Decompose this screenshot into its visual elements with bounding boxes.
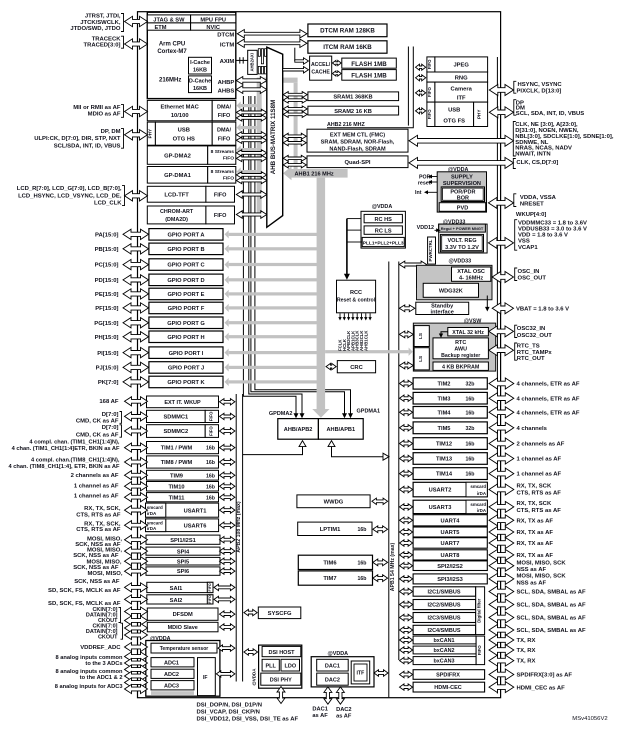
svg-text:PD[15:0]: PD[15:0]	[95, 278, 119, 284]
svg-text:SDMMC1: SDMMC1	[163, 415, 188, 421]
svg-text:GPIO PORT C: GPIO PORT C	[167, 263, 204, 269]
svg-text:ADC3: ADC3	[164, 684, 179, 690]
svg-text:Temperature sensor: Temperature sensor	[160, 646, 209, 652]
svg-text:PC[15:0]: PC[15:0]	[95, 263, 119, 269]
svg-text:FIFO: FIFO	[427, 59, 432, 69]
svg-text:EXT IT. WKUP: EXT IT. WKUP	[164, 400, 201, 406]
svg-text:LCD_CLK: LCD_CLK	[94, 201, 122, 207]
svg-text:1 channel as AF: 1 channel as AF	[517, 457, 562, 463]
svg-text:PG[15:0]: PG[15:0]	[94, 321, 118, 327]
svg-text:16b: 16b	[206, 473, 215, 479]
svg-text:TIM3: TIM3	[438, 396, 451, 402]
svg-text:DFSDM: DFSDM	[173, 612, 193, 618]
svg-text:FIFO: FIFO	[427, 109, 432, 119]
svg-text:VOLT. REG: VOLT. REG	[447, 238, 476, 244]
svg-text:LS: LS	[418, 332, 424, 339]
svg-text:TIM2: TIM2	[438, 382, 451, 388]
svg-text:LDO: LDO	[284, 663, 296, 669]
svg-text:SCL, SDA, INT, ID, VBUS: SCL, SDA, INT, ID, VBUS	[516, 111, 584, 117]
svg-text:CLK, CS,D[7:0]: CLK, CS,D[7:0]	[516, 160, 558, 166]
svg-text:GPIO PORT E: GPIO PORT E	[168, 292, 205, 298]
svg-text:SDMMC2: SDMMC2	[163, 429, 188, 435]
svg-text:WDG32K: WDG32K	[439, 288, 463, 294]
svg-text:VDDUSB33 = 3.0 to 3.6 V: VDDUSB33 = 3.0 to 3.6 V	[518, 227, 587, 233]
svg-text:TX, RX: TX, RX	[517, 648, 536, 654]
svg-text:SCK, NSS as AF: SCK, NSS as AF	[74, 579, 120, 585]
svg-text:I2C4/SMBUS: I2C4/SMBUS	[427, 628, 460, 634]
svg-text:Camera: Camera	[451, 86, 473, 92]
svg-text:NRESET: NRESET	[520, 201, 544, 207]
svg-text:GPDMA2: GPDMA2	[269, 411, 293, 417]
svg-text:SCL, SDA, SMBAL as AF: SCL, SDA, SMBAL as AF	[517, 603, 586, 609]
svg-text:CTS, RTS as AF: CTS, RTS as AF	[76, 512, 121, 518]
svg-text:GP-DMA2: GP-DMA2	[164, 153, 191, 159]
svg-text:I2C2/SMBUS: I2C2/SMBUS	[427, 603, 460, 609]
svg-text:SD, SCK, FS, MCLK as AF: SD, SCK, FS, MCLK as AF	[48, 601, 121, 607]
svg-text:1 channel as AF: 1 channel as AF	[74, 493, 119, 499]
svg-text:AHB1 216 MHz: AHB1 216 MHz	[295, 172, 334, 178]
svg-text:DTCM: DTCM	[217, 32, 234, 38]
svg-text:JTRST, JTDI,: JTRST, JTDI,	[85, 14, 121, 20]
svg-text:DSI_VCAP, DSI_CKP/N: DSI_VCAP, DSI_CKP/N	[197, 709, 260, 715]
svg-text:TIM12: TIM12	[436, 442, 452, 448]
svg-text:TIM13: TIM13	[436, 457, 452, 463]
svg-text:FIFO: FIFO	[477, 645, 482, 656]
svg-text:3.3V TO 1.2V: 3.3V TO 1.2V	[445, 245, 479, 251]
svg-text:16KB: 16KB	[193, 86, 207, 92]
svg-text:TIM9: TIM9	[170, 473, 183, 479]
svg-text:SCL, SDA, SMBAL as AF: SCL, SDA, SMBAL as AF	[517, 590, 586, 596]
svg-text:TIM10: TIM10	[168, 484, 184, 490]
svg-text:TIM4: TIM4	[438, 410, 452, 416]
svg-text:Regul + POWER MNGT: Regul + POWER MNGT	[441, 226, 484, 231]
svg-text:OSC32_IN: OSC32_IN	[517, 326, 545, 332]
svg-text:FLASH 1MB: FLASH 1MB	[351, 72, 387, 79]
svg-text:JTCK/SWCLK,: JTCK/SWCLK,	[80, 20, 121, 26]
svg-text:Ethernet MAC: Ethernet MAC	[161, 105, 200, 111]
svg-text:32b: 32b	[466, 382, 475, 388]
svg-text:LCD_R[7:0], LCD_G[7:0], LCD_B[: LCD_R[7:0], LCD_G[7:0], LCD_B[7:0],	[17, 186, 122, 192]
svg-text:16b: 16b	[466, 410, 475, 416]
svg-text:smcard: smcard	[470, 484, 486, 489]
svg-text:EXT MEM CTL (FMC): EXT MEM CTL (FMC)	[330, 133, 385, 139]
svg-text:SCL, SDA, SMBAL as AF: SCL, SDA, SMBAL as AF	[517, 616, 586, 622]
svg-text:AHB/APB2: AHB/APB2	[284, 427, 313, 433]
svg-text:CTS, RTS as AF: CTS, RTS as AF	[517, 508, 562, 514]
svg-text:SPDIFRX[3:0] as AF: SPDIFRX[3:0] as AF	[517, 673, 573, 679]
svg-text:RX, TX as AF: RX, TX as AF	[517, 541, 554, 547]
svg-text:FIFO: FIFO	[214, 193, 227, 199]
svg-text:SPI6: SPI6	[177, 569, 189, 575]
svg-text:ITF: ITF	[357, 671, 365, 677]
svg-text:GPIO PORT B: GPIO PORT B	[167, 247, 204, 253]
svg-text:I2C1/SMBUS: I2C1/SMBUS	[427, 590, 460, 596]
svg-text:FIFO: FIFO	[214, 213, 227, 219]
svg-text:SAI1: SAI1	[170, 586, 183, 592]
svg-text:VBAT = 1.8 to 3.6 V: VBAT = 1.8 to 3.6 V	[516, 307, 569, 313]
svg-text:SRAM, SDRAM, NOR-Flash,: SRAM, SDRAM, NOR-Flash,	[321, 140, 395, 146]
svg-text:POR: POR	[419, 174, 431, 180]
svg-text:FIFO: FIFO	[208, 583, 212, 591]
svg-text:IF: IF	[203, 675, 208, 681]
svg-text:I2C3/SMBUS: I2C3/SMBUS	[427, 616, 460, 622]
svg-text:4 compl. chan. (TIM1_CH1[1:4]N: 4 compl. chan. (TIM1_CH1[1:4]N),	[29, 439, 119, 445]
svg-text:DAC1: DAC1	[325, 663, 340, 669]
svg-text:HDMI_CEC as AF: HDMI_CEC as AF	[517, 685, 566, 691]
svg-text:I-Cache: I-Cache	[190, 60, 210, 66]
svg-text:GPIO PORT H: GPIO PORT H	[167, 335, 204, 341]
svg-text:VDDA, VSSA: VDDA, VSSA	[520, 195, 557, 201]
svg-text:FLASH 1MB: FLASH 1MB	[351, 61, 387, 68]
svg-text:DMA/: DMA/	[217, 127, 232, 133]
svg-text:CHROM-ART: CHROM-ART	[160, 209, 194, 215]
svg-text:ETM: ETM	[154, 25, 166, 31]
svg-text:TIM1 / PWM: TIM1 / PWM	[161, 446, 193, 452]
svg-text:4 KB BKPRAM: 4 KB BKPRAM	[442, 364, 480, 370]
svg-text:FIFO: FIFO	[218, 113, 231, 119]
svg-text:Digital filter: Digital filter	[477, 598, 482, 622]
svg-text:Cortex-M7: Cortex-M7	[157, 49, 187, 55]
svg-text:CKOUT: CKOUT	[98, 634, 118, 640]
svg-text:CTS, RTS as AF: CTS, RTS as AF	[517, 490, 562, 496]
svg-text:RX, TX as AF: RX, TX as AF	[517, 518, 554, 524]
svg-text:Backup register: Backup register	[441, 353, 480, 359]
svg-text:RC HS: RC HS	[374, 217, 392, 223]
svg-text:DAC2: DAC2	[325, 677, 340, 683]
svg-text:16b: 16b	[466, 396, 475, 402]
svg-text:AHB/APB1: AHB/APB1	[326, 427, 355, 433]
svg-text:POR/PDR: POR/PDR	[450, 189, 475, 195]
svg-text:ITCM RAM 16KB: ITCM RAM 16KB	[323, 44, 372, 51]
svg-text:8 Streams: 8 Streams	[211, 169, 235, 175]
svg-text:SCL, SDA, SMBAL as AF: SCL, SDA, SMBAL as AF	[517, 628, 586, 634]
svg-text:TX, RX: TX, RX	[517, 638, 536, 644]
svg-text:TIM8 / PWM: TIM8 / PWM	[161, 460, 193, 466]
svg-text:PB[15:0]: PB[15:0]	[95, 247, 119, 253]
svg-text:FIFO: FIFO	[218, 136, 231, 142]
svg-text:MII or RMII as AF: MII or RMII as AF	[73, 105, 121, 111]
svg-text:OSC_OUT: OSC_OUT	[518, 276, 547, 282]
svg-text:FIFO: FIFO	[223, 155, 234, 161]
svg-text:to the 3 ADCs: to the 3 ADCs	[85, 661, 122, 667]
svg-text:GPIO PORT J: GPIO PORT J	[168, 366, 204, 372]
svg-text:CMD, CK as AF: CMD, CK as AF	[76, 419, 119, 425]
svg-text:16b: 16b	[358, 561, 367, 567]
svg-text:SPI5: SPI5	[177, 559, 189, 565]
svg-text:USART3: USART3	[429, 505, 452, 511]
svg-text:D[7:0]: D[7:0]	[102, 412, 119, 418]
svg-text:GPIO PORT A: GPIO PORT A	[167, 233, 204, 239]
svg-text:PIXCLK, D[13:0]: PIXCLK, D[13:0]	[517, 89, 562, 95]
svg-text:AWU: AWU	[454, 346, 467, 352]
svg-text:CTS, RTS as AF: CTS, RTS as AF	[76, 527, 121, 533]
svg-text:APB2 108 MHz (max): APB2 108 MHz (max)	[236, 501, 242, 553]
svg-text:@VDDA: @VDDA	[252, 668, 257, 686]
svg-text:WWDG: WWDG	[324, 499, 344, 505]
svg-text:8 analog inputs for ADC3: 8 analog inputs for ADC3	[55, 684, 123, 690]
svg-text:ICTM: ICTM	[220, 42, 234, 48]
svg-text:USART1: USART1	[184, 508, 207, 514]
svg-text:SPI2/I2S2: SPI2/I2S2	[437, 564, 463, 570]
svg-text:smcard: smcard	[147, 520, 163, 525]
svg-text:JPEG: JPEG	[453, 63, 469, 69]
svg-text:RC LS: RC LS	[375, 228, 392, 234]
svg-text:16b: 16b	[206, 495, 215, 501]
svg-text:SUPPLY: SUPPLY	[451, 175, 473, 181]
svg-text:PI[15:0]: PI[15:0]	[97, 351, 118, 357]
svg-text:UART5: UART5	[441, 530, 460, 536]
svg-text:RX, TX, SCK: RX, TX, SCK	[517, 501, 552, 507]
svg-text:JTDO/SWD, JTDO: JTDO/SWD, JTDO	[70, 26, 120, 32]
svg-text:16b: 16b	[466, 472, 475, 478]
svg-text:irDA: irDA	[477, 491, 487, 496]
svg-text:SRAM2 16 KB: SRAM2 16 KB	[334, 109, 372, 115]
svg-text:PLL1+PLL2+PLL3: PLL1+PLL2+PLL3	[363, 240, 404, 246]
svg-text:GP-DMA1: GP-DMA1	[164, 173, 192, 179]
svg-text:DTCM RAM 128KB: DTCM RAM 128KB	[320, 28, 375, 35]
svg-text:VDDMMC33 = 1.8 to 3.6V: VDDMMC33 = 1.8 to 3.6V	[518, 221, 587, 227]
svg-text:bxCAN2: bxCAN2	[434, 648, 455, 654]
svg-text:HDMI-CEC: HDMI-CEC	[434, 685, 462, 691]
svg-text:16KB: 16KB	[193, 68, 207, 74]
svg-text:RX, TX as AF: RX, TX as AF	[517, 553, 554, 559]
svg-text:SPDIFRX: SPDIFRX	[436, 673, 460, 679]
svg-text:AHB2AXI: AHB2AXI	[249, 53, 254, 71]
svg-text:RNG: RNG	[455, 75, 468, 81]
svg-text:LCD-TFT: LCD-TFT	[164, 193, 189, 199]
svg-text:DSI PHY: DSI PHY	[270, 677, 292, 683]
svg-text:16b: 16b	[206, 484, 215, 490]
svg-text:BOR: BOR	[457, 196, 469, 202]
svg-text:AHB BUS-MATRIX 11S8M: AHB BUS-MATRIX 11S8M	[270, 100, 277, 175]
svg-text:VDD12: VDD12	[417, 225, 434, 231]
svg-text:TX, RX: TX, RX	[517, 659, 536, 665]
svg-text:SAI2: SAI2	[170, 598, 183, 604]
svg-text:TIM11: TIM11	[169, 495, 185, 501]
svg-text:DSI_DOP/N, DSI_D1P/N: DSI_DOP/N, DSI_D1P/N	[197, 702, 262, 708]
svg-text:APB1 54 MHz (max): APB1 54 MHz (max)	[390, 543, 396, 592]
svg-text:RTC_TS: RTC_TS	[517, 344, 540, 350]
svg-text:216MHz: 216MHz	[159, 78, 181, 84]
svg-text:VDDREF_ADC: VDDREF_ADC	[80, 645, 121, 651]
svg-text:UART4: UART4	[441, 518, 461, 524]
svg-text:AHBP: AHBP	[218, 80, 235, 86]
svg-text:16b: 16b	[206, 460, 215, 466]
svg-text:ACCEL/: ACCEL/	[311, 62, 331, 68]
svg-text:AHB1CLK: AHB1CLK	[363, 330, 368, 351]
svg-text:to the ADC1 & 2: to the ADC1 & 2	[80, 675, 123, 681]
svg-text:16b: 16b	[466, 442, 475, 448]
svg-text:CRC: CRC	[350, 365, 363, 371]
svg-text:ITF: ITF	[457, 95, 466, 101]
svg-text:PK[7:0]: PK[7:0]	[98, 380, 119, 386]
svg-text:PHY: PHY	[148, 129, 153, 138]
svg-text:CMD, CK as AF: CMD, CK as AF	[76, 432, 119, 438]
svg-text:DSI_VDD12, DSI_VSS, DSI_TE as: DSI_VDD12, DSI_VSS, DSI_TE as AF	[197, 717, 299, 723]
svg-text:Int: Int	[415, 190, 422, 196]
svg-text:FIFO: FIFO	[209, 411, 214, 421]
svg-text:NVIC: NVIC	[206, 25, 220, 31]
svg-text:10/100: 10/100	[171, 113, 189, 119]
svg-text:(DMA2D): (DMA2D)	[165, 217, 188, 223]
svg-text:MDIO as AF: MDIO as AF	[88, 111, 121, 117]
svg-text:RX, TX, SCK,: RX, TX, SCK,	[84, 506, 121, 512]
svg-text:NWAIT, INTN: NWAIT, INTN	[515, 152, 550, 158]
svg-text:PE[15:0]: PE[15:0]	[95, 292, 119, 298]
svg-text:TRACED[3:0]: TRACED[3:0]	[84, 43, 121, 49]
svg-text:NAND-Flash, SDRAM: NAND-Flash, SDRAM	[329, 146, 386, 152]
svg-text:16b: 16b	[206, 446, 215, 452]
svg-text:irDA: irDA	[147, 511, 157, 516]
svg-text:UART7: UART7	[441, 541, 460, 547]
svg-text:32b: 32b	[466, 426, 475, 432]
svg-text:bxCAN1: bxCAN1	[434, 638, 455, 644]
svg-text:RX, TX as AF: RX, TX as AF	[517, 530, 554, 536]
svg-text:SCL/SDA, INT, ID, VBUS: SCL/SDA, INT, ID, VBUS	[54, 143, 121, 149]
svg-text:USART2: USART2	[429, 488, 452, 494]
svg-text:PF[15:0]: PF[15:0]	[95, 306, 118, 312]
svg-text:TIM5: TIM5	[438, 426, 451, 432]
svg-text:bxCAN3: bxCAN3	[434, 659, 455, 665]
svg-text:FIFO: FIFO	[208, 595, 212, 603]
svg-text:ADC1: ADC1	[164, 661, 179, 667]
svg-text:NSS as AF: NSS as AF	[517, 567, 547, 573]
svg-text:interface: interface	[431, 310, 454, 316]
svg-text:HSYNC, VSYNC: HSYNC, VSYNC	[518, 82, 563, 88]
svg-text:PWRCTRL: PWRCTRL	[428, 239, 433, 261]
svg-text:4- 16MHz: 4- 16MHz	[459, 276, 483, 282]
svg-text:SRAM1 368KB: SRAM1 368KB	[333, 95, 372, 101]
svg-text:UART8: UART8	[441, 553, 460, 559]
svg-text:RCC: RCC	[350, 290, 362, 296]
svg-text:RX, TX, SCK: RX, TX, SCK	[517, 484, 552, 490]
svg-text:TIM14: TIM14	[436, 472, 453, 478]
svg-text:@VDD33: @VDD33	[449, 258, 472, 264]
svg-text:RTC_OUT: RTC_OUT	[517, 356, 545, 362]
svg-text:Reset & control: Reset & control	[337, 297, 376, 303]
svg-text:Arm CPU: Arm CPU	[159, 42, 185, 48]
svg-text:SPI3/I2S3: SPI3/I2S3	[437, 577, 463, 583]
svg-text:MSv41056V2: MSv41056V2	[572, 716, 607, 722]
svg-text:OSC32_OUT: OSC32_OUT	[517, 333, 552, 339]
svg-text:irDA: irDA	[147, 526, 157, 531]
svg-text:SPI1/I2S1: SPI1/I2S1	[170, 538, 196, 544]
svg-text:D[7:0]: D[7:0]	[102, 425, 119, 431]
svg-text:as AF: as AF	[312, 713, 328, 719]
svg-text:16b: 16b	[466, 457, 475, 463]
svg-text:Standby: Standby	[431, 304, 454, 310]
svg-text:GPIO PORT G: GPIO PORT G	[167, 321, 205, 327]
svg-text:4 channels, ETR as AF: 4 channels, ETR as AF	[517, 396, 580, 402]
svg-text:2 channels as AF: 2 channels as AF	[517, 442, 565, 448]
svg-text:CACHE: CACHE	[311, 69, 330, 75]
svg-text:1 channel as AF: 1 channel as AF	[74, 484, 119, 490]
svg-text:DP, DM: DP, DM	[101, 129, 121, 135]
svg-text:16b: 16b	[358, 527, 367, 533]
svg-text:FIFO: FIFO	[223, 175, 234, 181]
svg-text:4 chan. (TIM8_CH1[1:4], ETR, B: 4 chan. (TIM8_CH1[1:4], ETR, BKIN as AF	[8, 464, 120, 470]
svg-text:PVD: PVD	[457, 205, 469, 211]
svg-text:VCAP1: VCAP1	[518, 245, 538, 251]
svg-text:4 compl. chan.(TIM8_CH1[1:4]N): 4 compl. chan.(TIM8_CH1[1:4]N),	[31, 458, 120, 464]
svg-text:SCK, NSS as AF: SCK, NSS as AF	[73, 553, 119, 559]
svg-text:SUPERVISION: SUPERVISION	[443, 181, 481, 187]
svg-text:PH[15:0]: PH[15:0]	[95, 335, 119, 341]
svg-text:PA[15:0]: PA[15:0]	[95, 232, 118, 238]
svg-text:LCD_HSYNC, LCD_VSYNC, LCD_DE,: LCD_HSYNC, LCD_VSYNC, LCD_DE,	[18, 194, 122, 200]
svg-text:XTAL OSC: XTAL OSC	[457, 269, 485, 275]
svg-text:NSS as AF: NSS as AF	[517, 580, 547, 586]
svg-text:DAC2: DAC2	[336, 707, 352, 713]
svg-text:PLL: PLL	[266, 663, 277, 669]
svg-text:DSI HOST: DSI HOST	[269, 650, 296, 656]
svg-text:AXIM: AXIM	[220, 59, 235, 65]
svg-text:MDIO Slave: MDIO Slave	[168, 625, 198, 631]
svg-text:MOSI, MISO, SCK: MOSI, MISO, SCK	[517, 574, 567, 580]
svg-text:16b: 16b	[358, 576, 367, 582]
svg-text:AHBS: AHBS	[218, 89, 235, 95]
svg-text:D-Cache: D-Cache	[189, 79, 211, 85]
svg-text:@VDDA: @VDDA	[372, 204, 393, 210]
svg-text:SYSCFG: SYSCFG	[268, 611, 292, 617]
svg-text:4 channels, ETR as AF: 4 channels, ETR as AF	[517, 382, 580, 388]
svg-text:USART6: USART6	[184, 523, 207, 529]
svg-text:ADC2: ADC2	[164, 672, 179, 678]
svg-text:VSS: VSS	[518, 238, 530, 244]
svg-text:LS: LS	[418, 355, 424, 362]
svg-text:TIM7: TIM7	[323, 576, 336, 582]
svg-text:DMA/: DMA/	[217, 105, 232, 111]
svg-text:smcard: smcard	[470, 502, 486, 507]
svg-text:TRACECK: TRACECK	[92, 36, 122, 42]
svg-text:GPIO PORT F: GPIO PORT F	[168, 306, 205, 312]
svg-text:4 channels: 4 channels	[517, 426, 548, 432]
svg-text:irDA: irDA	[477, 508, 487, 513]
svg-text:OSC_IN: OSC_IN	[518, 269, 540, 275]
svg-text:8 Streams: 8 Streams	[211, 149, 235, 155]
svg-text:GPDMA1: GPDMA1	[357, 409, 381, 415]
svg-text:2 channels as AF: 2 channels as AF	[71, 473, 119, 479]
svg-text:PJ[15:0]: PJ[15:0]	[96, 366, 119, 372]
svg-text:168 AF: 168 AF	[99, 399, 118, 405]
svg-text:RTC: RTC	[455, 340, 466, 346]
svg-text:FIFO: FIFO	[427, 87, 432, 97]
svg-text:4 chan. (TIM1_CH1[1:4]ETR, BKI: 4 chan. (TIM1_CH1[1:4]ETR, BKIN as AF	[12, 446, 120, 452]
svg-text:OTG FS: OTG FS	[443, 118, 465, 124]
svg-text:DAC1: DAC1	[312, 706, 328, 712]
svg-text:XTAL 32 kHz: XTAL 32 kHz	[452, 330, 484, 336]
svg-text:LPTIM1: LPTIM1	[320, 527, 341, 533]
svg-text:GPIO PORT K: GPIO PORT K	[167, 380, 205, 386]
svg-text:GPIO PORT D: GPIO PORT D	[167, 278, 204, 284]
svg-text:Quad-SPI: Quad-SPI	[344, 160, 370, 166]
svg-text:RTC_TAMPx: RTC_TAMPx	[517, 350, 553, 356]
svg-text:MOSI, MISO,: MOSI, MISO,	[87, 571, 122, 577]
svg-text:PHY: PHY	[477, 110, 482, 119]
svg-text:OTG HS: OTG HS	[173, 136, 195, 142]
svg-text:ULPI:CK, D[7:0], DIR, STP, NXT: ULPI:CK, D[7:0], DIR, STP, NXT	[34, 136, 121, 142]
svg-text:MOSI, MISO, SCK: MOSI, MISO, SCK	[517, 561, 567, 567]
svg-text:USB: USB	[448, 107, 460, 113]
svg-text:reset: reset	[418, 181, 431, 187]
svg-text:as AF: as AF	[336, 713, 352, 719]
svg-text:SD, SCK, FS, MCLK as AF: SD, SCK, FS, MCLK as AF	[48, 588, 121, 594]
svg-text:1 channel as AF: 1 channel as AF	[517, 472, 562, 478]
svg-text:SPI4: SPI4	[177, 549, 190, 555]
svg-text:GPIO PORT I: GPIO PORT I	[169, 351, 204, 357]
svg-text:4 channels, ETR as AF: 4 channels, ETR as AF	[517, 410, 580, 416]
svg-text:smcard: smcard	[147, 505, 163, 510]
